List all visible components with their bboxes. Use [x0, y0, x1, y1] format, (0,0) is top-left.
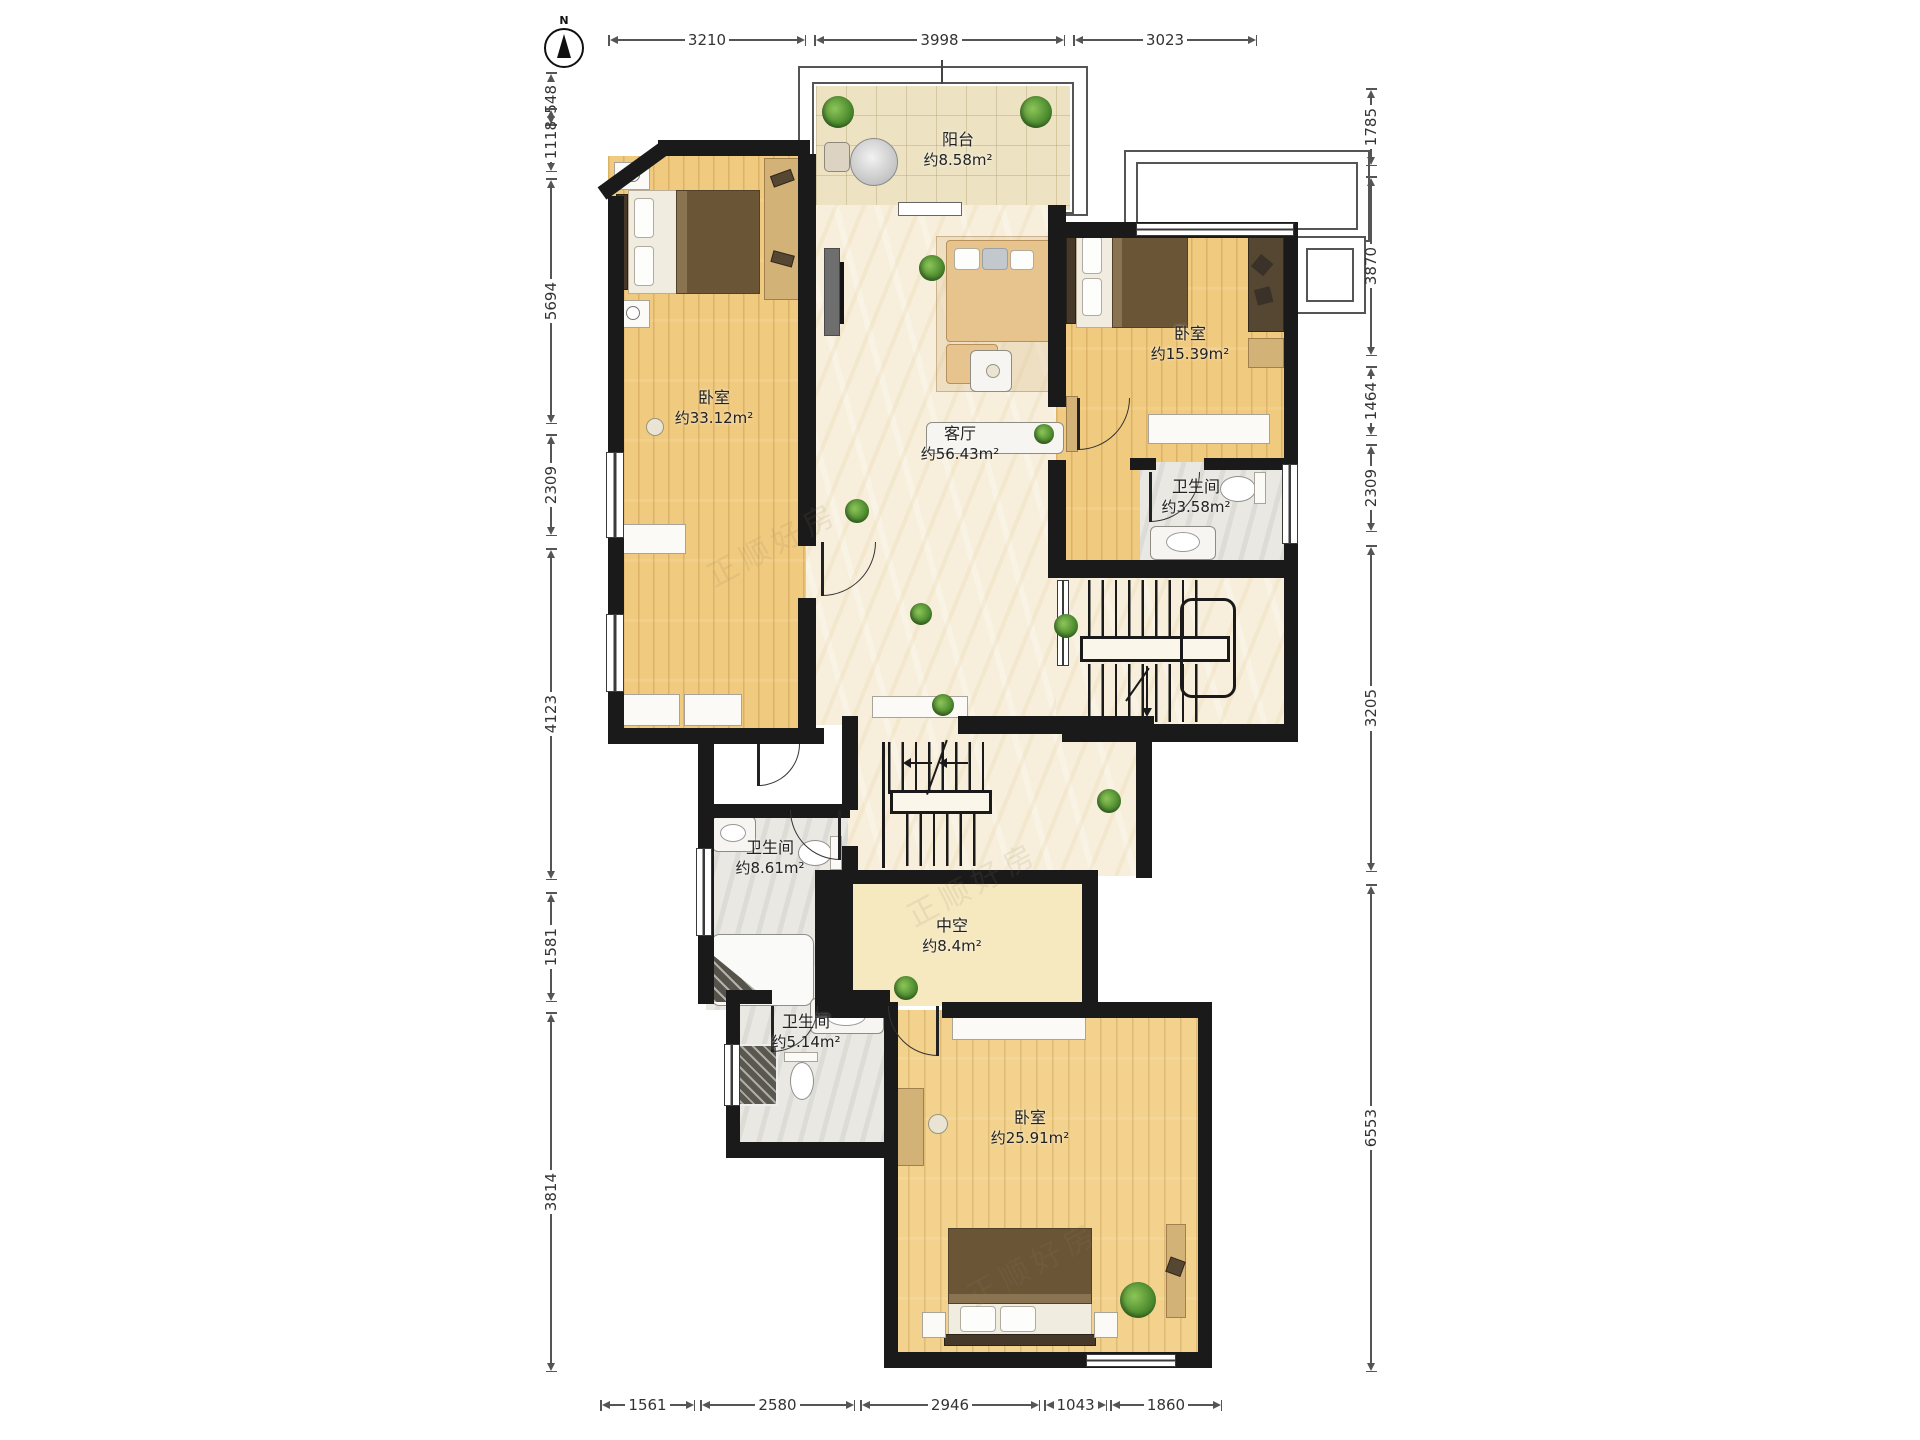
- room-name: 卧室: [991, 1108, 1070, 1129]
- dimension-line: [550, 188, 551, 279]
- dimension-line: [550, 558, 551, 692]
- pillow: [954, 248, 980, 270]
- wall: [942, 1002, 1212, 1018]
- door-leaf: [1077, 398, 1080, 450]
- arrowhead-icon: [1367, 547, 1375, 555]
- closet: [616, 694, 680, 726]
- dimension-left: 5694: [543, 178, 559, 424]
- arrowhead-icon: [1031, 1401, 1039, 1409]
- dimension-bottom: 2946: [860, 1397, 1040, 1413]
- dimension-line: [1188, 1404, 1212, 1405]
- arrowhead-icon: [1098, 1401, 1106, 1409]
- dimension-line: [1083, 39, 1143, 40]
- plant-icon: [1120, 1282, 1156, 1318]
- window: [606, 614, 624, 692]
- dimension-left: 4123: [543, 548, 559, 880]
- dimension-right: 3205: [1363, 545, 1379, 872]
- dimension-line: [1039, 1400, 1041, 1411]
- dimension-top: 3023: [1073, 32, 1257, 48]
- room-label-balcony: 阳台 约8.58m²: [923, 130, 992, 170]
- dimension-line: [1366, 355, 1377, 357]
- wall: [842, 716, 858, 810]
- wall: [608, 196, 624, 616]
- dimension-line: [1120, 1404, 1144, 1405]
- dimension-label: 1860: [1144, 1396, 1188, 1414]
- room-name: 阳台: [923, 130, 992, 151]
- wall: [1082, 870, 1098, 1018]
- window: [696, 848, 712, 936]
- wall: [1136, 742, 1152, 878]
- dimension-line: [1370, 731, 1371, 863]
- dimension-label: 2309: [542, 463, 560, 507]
- compass: N: [544, 14, 584, 68]
- dimension-line: [1370, 454, 1371, 466]
- dimension-line: [1187, 39, 1247, 40]
- arrowhead-icon: [547, 163, 555, 171]
- lamp: [626, 306, 640, 320]
- pillow: [634, 246, 654, 286]
- dimension-bottom: 1860: [1110, 1397, 1222, 1413]
- dimension-line: [870, 1404, 928, 1405]
- wall: [798, 154, 816, 546]
- wall: [1284, 570, 1298, 742]
- room-area: 约8.58m²: [923, 151, 992, 171]
- arrowhead-icon: [547, 1363, 555, 1371]
- plant-icon: [1097, 789, 1121, 813]
- staircase-railing: [882, 742, 885, 868]
- dimension-label: 3023: [1143, 31, 1187, 49]
- arrowhead-icon: [1075, 36, 1083, 44]
- pillow: [982, 248, 1008, 270]
- dimension-line: [1106, 1400, 1108, 1411]
- pillow: [1082, 278, 1102, 316]
- vase: [986, 364, 1000, 378]
- compass-needle-icon: [557, 34, 571, 58]
- arrowhead-icon: [1367, 347, 1375, 355]
- dimension-line: [1366, 531, 1377, 533]
- wall: [608, 728, 824, 744]
- wall: [726, 990, 772, 1004]
- dimension-line: [546, 1001, 557, 1003]
- room-name: 卫生间: [771, 1012, 840, 1033]
- arrowhead-icon: [547, 1014, 555, 1022]
- dimension-left: 548: [543, 72, 559, 100]
- wall: [815, 870, 1087, 884]
- dimension-line: [618, 39, 685, 40]
- room-area: 约3.58m²: [1161, 498, 1230, 518]
- arrowhead-icon: [1112, 1401, 1120, 1409]
- door-arc: [758, 744, 800, 786]
- arrowhead-icon: [1367, 863, 1375, 871]
- dimension-label: 1581: [542, 925, 560, 969]
- balcony-chair: [824, 142, 850, 172]
- wardrobe: [1248, 236, 1284, 332]
- arrowhead-icon: [1367, 523, 1375, 531]
- dimension-top: 3998: [814, 32, 1065, 48]
- dimension-label: 3870: [1362, 244, 1380, 288]
- pillow: [1082, 236, 1102, 274]
- dimension-line: [805, 35, 807, 46]
- arrowhead-icon: [547, 993, 555, 1001]
- wall: [726, 1142, 892, 1158]
- sink-basin: [1166, 532, 1200, 552]
- dimension-line: [1370, 186, 1371, 244]
- dimension-line: [800, 1404, 846, 1405]
- dimension-right: 2309: [1363, 444, 1379, 532]
- plant-icon: [894, 976, 918, 1000]
- door-leaf: [821, 542, 824, 596]
- dimension-right: 3870: [1363, 176, 1379, 356]
- closet: [684, 694, 742, 726]
- bay-window-outline: [1306, 248, 1354, 302]
- wall: [958, 716, 1154, 734]
- bay-window-outline: [1136, 162, 1358, 230]
- arrowhead-icon: [547, 74, 555, 82]
- plant-icon: [1020, 96, 1052, 128]
- arrowhead-icon: [702, 1401, 710, 1409]
- wall: [698, 742, 714, 812]
- room-label-bath-right: 卫生间 约3.58m²: [1161, 477, 1230, 517]
- dimension-line: [1370, 149, 1371, 156]
- wall: [884, 1154, 898, 1368]
- arrowhead-icon: [547, 527, 555, 535]
- dimension-line: [1064, 35, 1066, 46]
- arrowhead-icon: [547, 436, 555, 444]
- dimension-label: 3210: [685, 31, 729, 49]
- arrowhead-icon: [1367, 1363, 1375, 1371]
- arrowhead-icon: [610, 36, 618, 44]
- arrowhead-icon: [1248, 36, 1256, 44]
- dimension-label: 1464: [1362, 379, 1380, 423]
- staircase-arrow: [906, 762, 932, 764]
- dimension-line: [729, 39, 796, 40]
- dimension-label: 3814: [542, 1170, 560, 1214]
- arrowhead-icon: [1213, 1401, 1221, 1409]
- arrowhead-icon: [1367, 178, 1375, 186]
- wall: [815, 870, 853, 1008]
- dimension-line: [546, 171, 557, 173]
- arrowhead-icon: [1367, 90, 1375, 98]
- room-label-bedroom-left: 卧室 约33.12m²: [675, 388, 754, 428]
- dimension-line: [550, 736, 551, 870]
- balcony-table: [850, 138, 898, 186]
- dimension-left: 3814: [543, 1012, 559, 1372]
- room-label-bedroom-bottom: 卧室 约25.91m²: [991, 1108, 1070, 1148]
- room-name: 卧室: [675, 388, 754, 409]
- plant-icon: [1034, 424, 1054, 444]
- room-area: 约8.4m²: [922, 937, 981, 957]
- wall: [822, 990, 890, 1004]
- closet: [1148, 414, 1270, 444]
- dimension-right: 1785: [1363, 88, 1379, 166]
- arrowhead-icon: [686, 1401, 694, 1409]
- room-area: 约56.43m²: [921, 445, 1000, 465]
- dimension-label: 2309: [1362, 466, 1380, 510]
- arrowhead-icon: [1046, 1401, 1054, 1409]
- dimension-line: [546, 879, 557, 881]
- room-area: 约33.12m²: [675, 409, 754, 429]
- plant-icon: [822, 96, 854, 128]
- dimension-line: [550, 323, 551, 414]
- arrowhead-icon: [547, 180, 555, 188]
- plant-icon: [932, 694, 954, 716]
- dimension-left: 1118: [543, 108, 559, 172]
- plant-icon: [919, 255, 945, 281]
- window: [724, 1044, 740, 1106]
- dimension-line: [546, 1371, 557, 1373]
- dimension-left: 2309: [543, 434, 559, 536]
- room-name: 卫生间: [1161, 477, 1230, 498]
- dimension-line: [546, 535, 557, 537]
- dimension-line: [1370, 894, 1371, 1106]
- dimension-line: [1366, 435, 1377, 437]
- pillow: [960, 1306, 996, 1332]
- pillow: [634, 198, 654, 238]
- plant-icon: [910, 603, 932, 625]
- dimension-label: 1561: [625, 1396, 669, 1414]
- dimension-line: [1370, 510, 1371, 522]
- toilet: [790, 1062, 814, 1100]
- arrowhead-icon: [816, 36, 824, 44]
- floor-bedroom-right: [1056, 455, 1144, 570]
- arrowhead-icon: [1367, 446, 1375, 454]
- dimension-line: [824, 39, 918, 40]
- dimension-label: 1118: [542, 118, 560, 162]
- dimension-label: 6553: [1362, 1106, 1380, 1150]
- room-area: 约15.39m²: [1151, 345, 1230, 365]
- staircase-treads: [906, 812, 984, 866]
- dimension-right: 6553: [1363, 884, 1379, 1372]
- arrowhead-icon: [1367, 157, 1375, 165]
- arrowhead-icon: [1367, 368, 1375, 376]
- compass-north-label: N: [544, 14, 584, 27]
- staircase-railing: [1180, 598, 1236, 698]
- room-area: 约25.91m²: [991, 1129, 1070, 1149]
- arrowhead-icon: [846, 1401, 854, 1409]
- dimension-line: [550, 507, 551, 526]
- dimension-label: 5694: [542, 279, 560, 323]
- wall: [658, 140, 810, 156]
- railing-tick: [941, 60, 943, 84]
- window: [1086, 1354, 1176, 1367]
- dimension-bottom: 2580: [700, 1397, 855, 1413]
- bed-blanket: [676, 190, 760, 294]
- dimension-label: 1043: [1054, 1396, 1098, 1414]
- compass-circle: [544, 28, 584, 68]
- nightstand: [1094, 1312, 1118, 1338]
- window-bench: [614, 524, 686, 554]
- dimension-line: [550, 1214, 551, 1362]
- room-label-living: 客厅 约56.43m²: [921, 424, 1000, 464]
- wall: [1130, 458, 1156, 470]
- dimension-line: [1370, 1150, 1371, 1362]
- dimension-line: [550, 902, 551, 925]
- room-label-bath-mid: 卫生间 约8.61m²: [735, 838, 804, 878]
- tv-console: [824, 248, 840, 336]
- dimension-line: [550, 969, 551, 992]
- wall: [798, 598, 816, 742]
- dimension-line: [1370, 288, 1371, 346]
- dimension-bottom: 1043: [1044, 1397, 1106, 1413]
- toilet-tank: [1254, 472, 1266, 504]
- dimension-left: 1581: [543, 892, 559, 1002]
- room-name: 中空: [922, 916, 981, 937]
- room-label-bath-low: 卫生间 约5.14m²: [771, 1012, 840, 1052]
- bed-blanket: [948, 1228, 1092, 1304]
- room-name: 卫生间: [735, 838, 804, 859]
- door-leaf: [838, 810, 841, 860]
- dimension-line: [1370, 98, 1371, 105]
- room-label-bedroom-right: 卧室 约15.39m²: [1151, 324, 1230, 364]
- tv: [840, 262, 844, 324]
- dimension-bottom: 1561: [600, 1397, 695, 1413]
- dimension-line: [610, 1404, 626, 1405]
- door-leaf: [936, 1006, 939, 1056]
- arrowhead-icon: [547, 110, 555, 118]
- window: [606, 452, 624, 538]
- dimension-line: [1366, 1371, 1377, 1373]
- dimension-top: 3210: [608, 32, 806, 48]
- staircase-arrow: [942, 762, 968, 764]
- room-area: 约8.61m²: [735, 859, 804, 879]
- dimension-line: [670, 1404, 686, 1405]
- floor-plan-canvas: N 正顺好房 正顺好房 正顺好房 阳台 约8.58m² 卧室 约33.12m² …: [0, 0, 1920, 1440]
- dimension-right: 1464: [1363, 366, 1379, 436]
- dimension-label: 3998: [917, 31, 961, 49]
- dimension-label: 3205: [1362, 686, 1380, 730]
- dimension-line: [1366, 871, 1377, 873]
- arrowhead-icon: [602, 1401, 610, 1409]
- dimension-line: [1370, 555, 1371, 687]
- nightstand: [922, 1312, 946, 1338]
- dimension-line: [1221, 1400, 1223, 1411]
- dimension-line: [694, 1400, 696, 1411]
- arrowhead-icon: [862, 1401, 870, 1409]
- arrowhead-icon: [1367, 886, 1375, 894]
- arrowhead-icon: [547, 894, 555, 902]
- room-name: 卧室: [1151, 324, 1230, 345]
- dimension-line: [854, 1400, 856, 1411]
- wall: [1062, 560, 1298, 578]
- dimension-line: [972, 1404, 1030, 1405]
- dimension-label: 2946: [928, 1396, 972, 1414]
- wall: [1198, 1002, 1212, 1368]
- arrowhead-icon: [547, 871, 555, 879]
- door-leaf: [757, 744, 760, 786]
- plant-icon: [845, 499, 869, 523]
- pillow: [1010, 250, 1034, 270]
- window: [1282, 464, 1298, 544]
- dimension-line: [1256, 35, 1258, 46]
- door-leaf: [1149, 472, 1152, 522]
- plant-icon: [1054, 614, 1078, 638]
- room-area: 约5.14m²: [771, 1033, 840, 1053]
- balcony-step: [898, 202, 962, 216]
- dimension-line: [546, 423, 557, 425]
- arrowhead-icon: [1367, 427, 1375, 435]
- bed-blanket: [1112, 228, 1188, 328]
- dimension-line: [550, 444, 551, 463]
- dimension-label: 2580: [755, 1396, 799, 1414]
- room-name: 客厅: [921, 424, 1000, 445]
- bed-headboard: [944, 1334, 1096, 1346]
- pillow: [1000, 1306, 1036, 1332]
- room-label-void: 中空 约8.4m²: [922, 916, 981, 956]
- dimension-label: 1785: [1362, 105, 1380, 149]
- bed-headboard: [1066, 232, 1076, 324]
- arrowhead-icon: [1056, 36, 1064, 44]
- staircase-landing: [890, 790, 992, 814]
- stool: [646, 418, 664, 436]
- arrowhead-icon: [797, 36, 805, 44]
- dimension-line: [710, 1404, 756, 1405]
- window: [1136, 223, 1294, 236]
- arrowhead-icon: [547, 550, 555, 558]
- dimension-line: [550, 1022, 551, 1170]
- dimension-label: 4123: [542, 692, 560, 736]
- dresser: [1248, 338, 1284, 368]
- arrowhead-icon: [547, 415, 555, 423]
- dimension-line: [962, 39, 1056, 40]
- stool: [928, 1114, 948, 1134]
- dimension-line: [1366, 165, 1377, 167]
- toilet-tank: [784, 1052, 818, 1062]
